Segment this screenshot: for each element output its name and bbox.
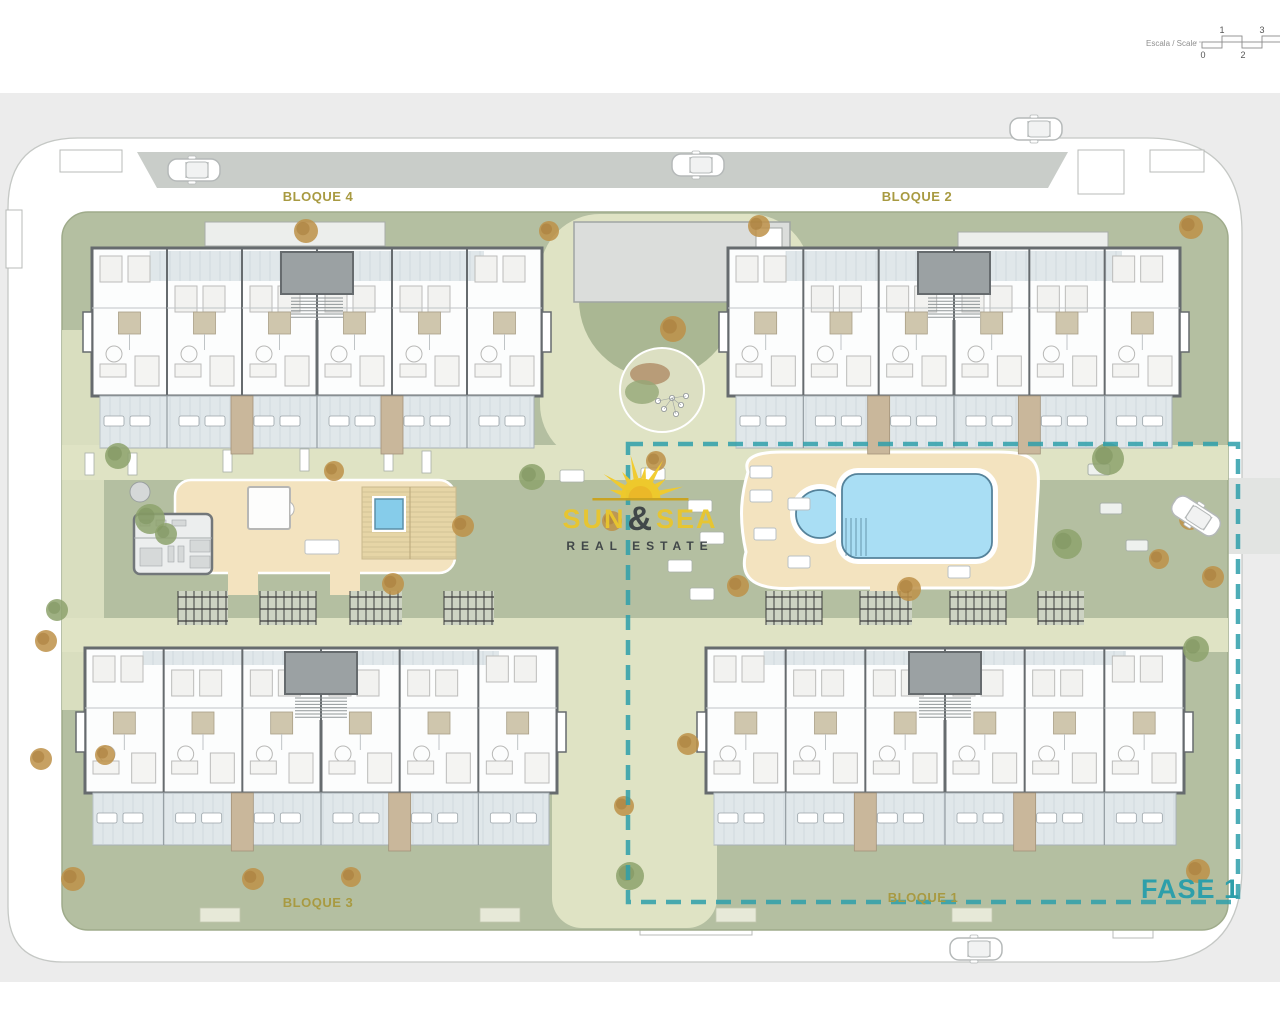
stair-core [918,252,990,294]
sun-lounger [430,416,450,426]
spa-plunge-pool [372,496,406,532]
sun-lounger [957,813,977,823]
building-bloque-3 [76,648,566,851]
sun-lounger [754,528,776,540]
sun-lounger [404,416,424,426]
sun-lounger [1037,813,1057,823]
scale-bar [1196,36,1280,48]
sun-lounger [516,813,536,823]
sun-lounger [355,416,375,426]
label-bloque-1: BLOQUE 1 [888,890,958,905]
car [168,156,220,184]
scale-tick-0: 0 [1200,50,1205,60]
sun-lounger [359,813,379,823]
scale-tick-1: 1 [1219,25,1224,35]
sun-lounger [254,416,274,426]
label-bloque-4: BLOQUE 4 [283,189,353,204]
sun-lounger [1143,416,1163,426]
site-plan-page: BLOQUE 4 BLOQUE 2 BLOQUE 3 BLOQUE 1 FASE… [0,0,1280,1024]
sun-lounger [744,813,764,823]
sun-lounger [479,416,499,426]
sun-lounger [280,416,300,426]
sun-lounger [1142,813,1162,823]
car [1010,115,1062,143]
sun-lounger [788,556,810,568]
sun-lounger [123,813,143,823]
playground-circle [620,348,704,432]
sun-lounger [877,813,897,823]
logo-ampersand: & [625,500,656,538]
sun-lounger [750,490,772,502]
sun-lounger [798,813,818,823]
sun-lounger [948,566,970,578]
building-bloque-4 [83,248,551,454]
sun-lounger [104,416,124,426]
label-fase-1: FASE 1 [1141,874,1240,905]
sun-lounger [412,813,432,823]
sun-lounger [891,416,911,426]
sun-lounger [1067,416,1087,426]
sun-lounger [97,813,117,823]
sun-lounger [917,416,937,426]
building-bloque-1 [697,648,1193,851]
sun-lounger [841,416,861,426]
swimming-pool [836,468,998,564]
sun-lounger [718,813,738,823]
sun-lounger [438,813,458,823]
sun-lounger [740,416,760,426]
sun-lounger [179,416,199,426]
sun-lounger [1063,813,1083,823]
sun-lounger [205,416,225,426]
sun-lounger [824,813,844,823]
sun-lounger [1126,540,1148,551]
sun-lounger [750,466,772,478]
stair-core [281,252,353,294]
sun-lounger [254,813,274,823]
sun-and-sea-logo: SUN&SEA REAL ESTATE [562,444,717,553]
sun-lounger [966,416,986,426]
stair-core [909,652,981,694]
sun-lounger [329,416,349,426]
sun-lounger [333,813,353,823]
scale-tick-2: 2 [1240,50,1245,60]
scale-bar-label: Escala / Scale [1146,39,1197,48]
stair-core [285,652,357,694]
sun-lounger [505,416,525,426]
sun-lounger [130,416,150,426]
sun-lounger [202,813,222,823]
sun-lounger [1117,416,1137,426]
sun-rays-icon [570,444,710,502]
sun-lounger [1100,503,1122,514]
car [672,151,724,179]
sun-lounger [766,416,786,426]
sun-lounger [1041,416,1061,426]
sun-lounger [983,813,1003,823]
sun-lounger [176,813,196,823]
building-bloque-2 [719,248,1189,454]
sun-lounger [1116,813,1136,823]
sun-lounger [280,813,300,823]
shade-pavilion [248,487,294,529]
logo-wordmark: SUN&SEA [562,500,717,536]
sun-lounger [992,416,1012,426]
label-bloque-2: BLOQUE 2 [882,189,952,204]
sun-lounger [815,416,835,426]
sun-lounger [788,498,810,510]
sun-lounger [490,813,510,823]
scale-tick-3: 3 [1259,25,1264,35]
logo-subtitle: REAL ESTATE [562,539,717,553]
car [950,935,1002,963]
sun-lounger [903,813,923,823]
label-bloque-3: BLOQUE 3 [283,895,353,910]
